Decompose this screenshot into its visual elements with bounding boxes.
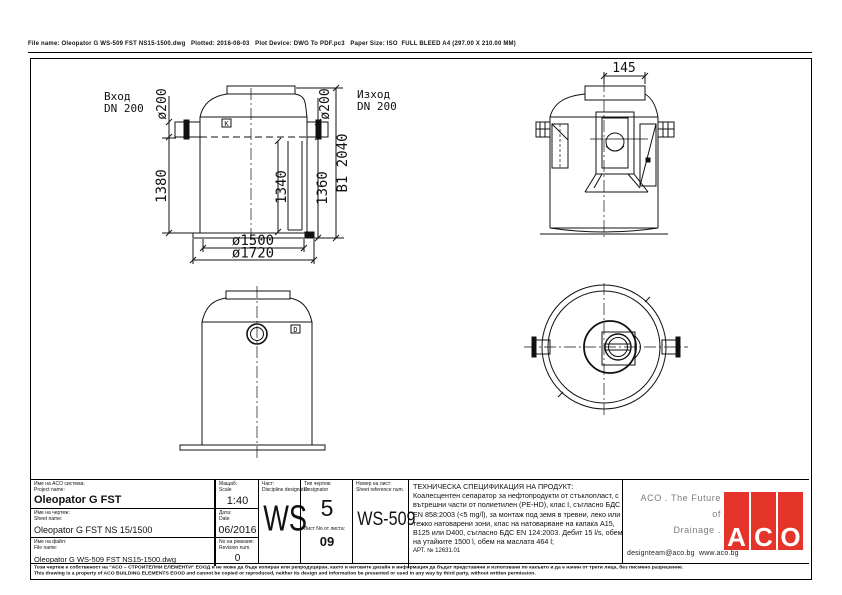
branding-cell: ACO . The Future of Drainage . designtea… xyxy=(622,480,810,564)
date-value: 06/2016 xyxy=(216,524,259,536)
outlet-label-line2: DN 200 xyxy=(357,100,397,113)
dim-cover-offset: 145 xyxy=(612,61,635,76)
spec-body: Коалесцентен сепаратор за нефтопродукти … xyxy=(413,491,627,546)
date-cell: Дата:Date 06/2016 xyxy=(215,509,259,537)
dim-inner-height: 1340 xyxy=(274,170,290,204)
project-label-en: Project name: xyxy=(34,487,65,493)
sheet-ref-cell: Номер на лист:Sheet reference num. WS-50… xyxy=(352,480,409,564)
disclaimer-line-bg: Този чертеж е собственост на "АСО – СТРО… xyxy=(34,565,806,571)
dim-outlet-diameter: ø200 xyxy=(318,88,333,119)
front-view-drawing xyxy=(180,286,325,458)
side-view-drawing xyxy=(536,72,674,240)
discipline-value: WS xyxy=(263,499,297,540)
title-block: Име на ACO система:Project name: Oleopat… xyxy=(31,479,809,564)
title-block-names-column: Име на ACO система:Project name: Oleopat… xyxy=(31,480,258,564)
discipline-cell: Част:Discipline designator WS xyxy=(258,480,301,564)
aco-logo-letter-c: C xyxy=(751,524,776,550)
inlet-label-line2: DN 200 xyxy=(104,102,144,115)
disclaimer-line-en: This drawing is a property of ACO BUILDI… xyxy=(34,571,806,577)
revision-cell: Nо на ревизия:Revision num. 0 xyxy=(215,538,259,566)
sheet-no-value: 09 xyxy=(301,534,353,549)
tagline-line2: Drainage . xyxy=(673,525,721,535)
sheet-no-label: Лист No от листа: xyxy=(301,525,353,533)
scale-label-en: Scale xyxy=(219,487,232,493)
project-name-value: Oleopator G FST xyxy=(31,494,214,506)
front-marker-d: D xyxy=(293,326,297,334)
tagline-line1: ACO . The Future of xyxy=(641,493,721,519)
aco-logo: A C O xyxy=(724,492,803,550)
sheet-border: Вход DN 200 Изход DN 200 ø200 ø200 1380 … xyxy=(30,58,812,580)
designator-cell: Тип чертеж:Designator 5 Лист No от листа… xyxy=(300,480,353,564)
dim-outer-diameter: ø1720 xyxy=(232,246,274,262)
spec-cell: ТЕХНИЧЕСКА СПЕЦИФИКАЦИЯ НА ПРОДУКТ: Коал… xyxy=(408,480,631,568)
aco-logo-letter-a: A xyxy=(724,524,749,550)
top-view-drawing xyxy=(524,283,688,415)
dim-inlet-diameter: ø200 xyxy=(155,88,170,119)
date-label-en: Date xyxy=(219,516,230,522)
file-label-en: File name: xyxy=(34,545,57,551)
project-name-cell: Име на ACO система:Project name: Oleopat… xyxy=(31,480,215,508)
drawing-sheet: File name: Oleopator G WS-509 FST NS15-1… xyxy=(0,0,842,595)
scale-value: 1:40 xyxy=(216,495,259,507)
sheet-name-row: Име на чертеж:Sheet name: Oleopator G FS… xyxy=(31,509,258,538)
designator-label-en: Designator xyxy=(304,487,328,493)
aco-logo-bar: C xyxy=(751,492,776,550)
drawing-area: Вход DN 200 Изход DN 200 ø200 ø200 1380 … xyxy=(31,59,809,479)
plot-header-line: File name: Oleopator G WS-509 FST NS15-1… xyxy=(28,41,516,47)
aco-logo-bar: A xyxy=(724,492,749,550)
dim-right-height: 1360 xyxy=(315,171,331,205)
disclaimer: Този чертеж е собственост на "АСО – СТРО… xyxy=(31,563,809,577)
project-row: Име на ACO система:Project name: Oleopat… xyxy=(31,480,258,509)
aco-tagline: ACO . The Future of Drainage . xyxy=(629,490,721,538)
sheet-ref-label-en: Sheet reference num. xyxy=(356,487,404,493)
contact-line: designteam@aco.bg www.aco.bg xyxy=(627,550,739,557)
file-name-row: Име на файл:File name: Oleopator G WS-50… xyxy=(31,538,258,566)
sheet-name-cell: Име на чертеж:Sheet name: Oleopator G FS… xyxy=(31,509,215,537)
spec-art-number: АРТ. № 12631.01 xyxy=(413,547,627,556)
sheet-name-value: Oleopator G FST NS 15/1500 xyxy=(31,525,214,535)
revision-label-en: Revision num. xyxy=(219,545,251,551)
aco-logo-bar: O xyxy=(778,492,803,550)
scale-cell: Мащаб:Scale 1:40 xyxy=(215,480,259,508)
dim-overall-height: B1 2040 xyxy=(335,133,351,192)
designator-value: 5 xyxy=(301,495,353,522)
sheet-ref-value: WS-509 xyxy=(357,509,405,531)
dim-left-height: 1380 xyxy=(154,169,170,203)
header-rule xyxy=(28,52,812,53)
file-name-cell: Име на файл:File name: Oleopator G WS-50… xyxy=(31,538,215,566)
spec-title: ТЕХНИЧЕСКА СПЕЦИФИКАЦИЯ НА ПРОДУКТ: xyxy=(413,482,627,491)
aco-logo-letter-o: O xyxy=(778,524,803,550)
sheet-label-en: Sheet name: xyxy=(34,516,62,522)
